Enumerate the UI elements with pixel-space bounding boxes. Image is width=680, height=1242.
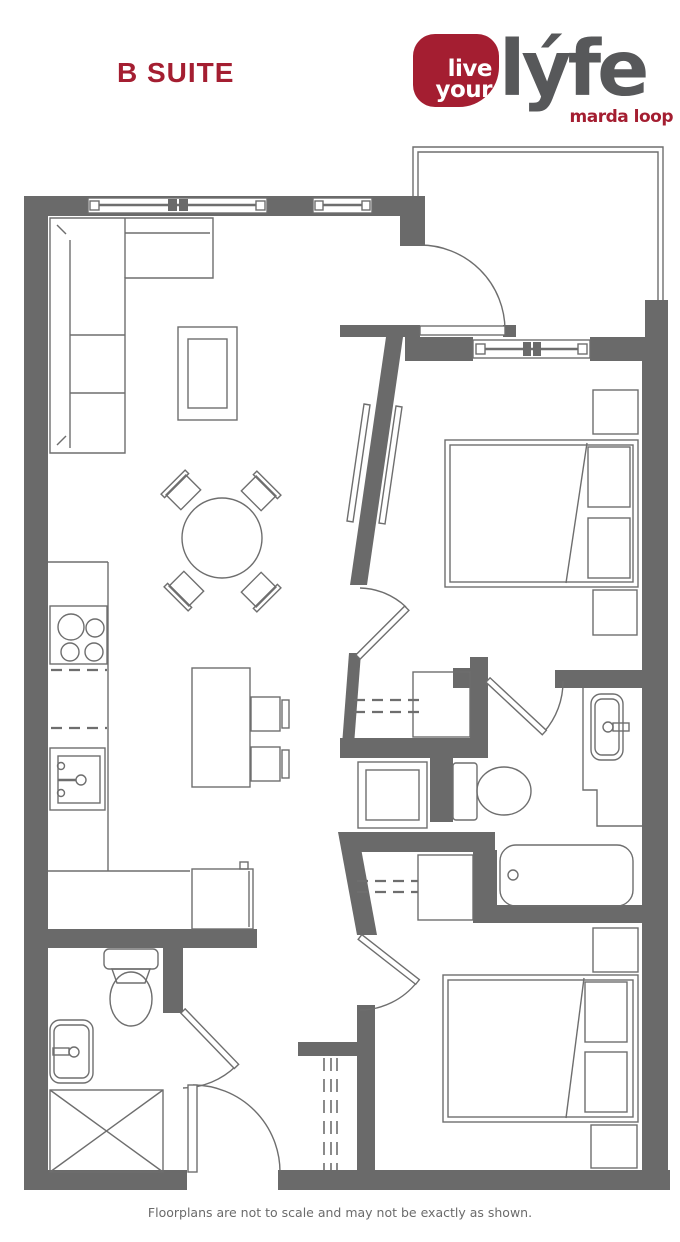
dining-chair-icon: [161, 470, 203, 512]
entry-door-swing-icon: [420, 245, 505, 335]
nightstand-icon: [593, 390, 638, 434]
kitchen-island-icon: [192, 668, 289, 787]
sectional-sofa-icon: [50, 218, 213, 453]
nightstand-icon: [591, 1125, 637, 1168]
stove-icon: [50, 606, 107, 664]
bathroom2-door-swing-icon: [181, 1009, 239, 1088]
vanity-sink-icon: [583, 688, 642, 826]
bedroom1-door-swing-icon: [356, 588, 409, 659]
dining-chair-icon: [239, 471, 281, 513]
living-room-window-icon: [313, 198, 372, 213]
bathtub-icon: [500, 845, 633, 906]
bed2-icon: [443, 975, 638, 1122]
closet-shelves-icon: [354, 672, 470, 737]
toilet-icon: [453, 763, 531, 820]
nightstand-icon: [593, 928, 638, 972]
kitchen-counter-icon: [48, 562, 190, 871]
hall-door-swing-icon: [188, 1085, 280, 1172]
bedroom2-door-swing-icon: [358, 935, 419, 1010]
vanity-sink-icon: [50, 1020, 93, 1083]
bar-stool-icon: [251, 747, 289, 781]
dining-chair-icon: [164, 569, 206, 611]
floorplan: [0, 0, 680, 1242]
toilet-icon: [104, 949, 158, 1026]
dining-table-icon: [161, 470, 281, 612]
balcony: [413, 147, 663, 300]
shower-icon: [50, 1090, 163, 1172]
bathroom1-door-swing-icon: [486, 678, 563, 735]
logo-badge-icon: live your: [413, 34, 499, 107]
brand-logo: live your lýfe marda loop: [413, 30, 673, 130]
bar-stool-icon: [251, 697, 289, 731]
nightstand-icon: [593, 590, 637, 635]
coffee-table-icon: [178, 327, 237, 420]
linen-closet-shelves-icon: [324, 1058, 337, 1170]
bed1-icon: [445, 440, 638, 587]
living-room-window-icon: [88, 198, 267, 213]
dining-chair-icon: [239, 570, 281, 612]
bedroom1-window-icon: [473, 340, 590, 358]
desk-cabinet-icon: [192, 862, 253, 929]
washer-dryer-icon: [358, 762, 427, 828]
kitchen-sink-icon: [50, 748, 105, 810]
disclaimer-text: Floorplans are not to scale and may not …: [0, 1205, 680, 1220]
logo-tagline-line2: your: [435, 80, 492, 101]
page-title: B SUITE: [117, 57, 234, 89]
logo-location: marda loop: [570, 107, 673, 127]
closet-shelves-icon: [357, 855, 473, 920]
